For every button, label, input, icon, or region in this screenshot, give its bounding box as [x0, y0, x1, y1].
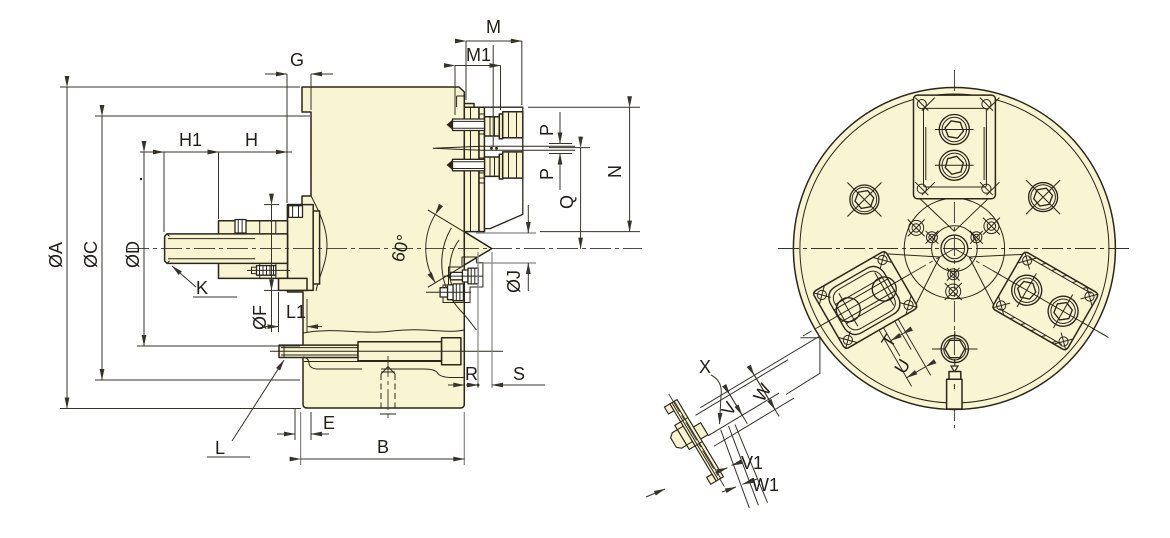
- svg-text:ØJ: ØJ: [504, 270, 524, 293]
- svg-text:R: R: [465, 364, 478, 384]
- svg-text:K: K: [196, 278, 208, 298]
- svg-text:E: E: [323, 413, 335, 433]
- svg-text:H: H: [245, 130, 258, 150]
- svg-text:P: P: [537, 168, 557, 180]
- svg-text:H1: H1: [179, 130, 202, 150]
- svg-text:M: M: [486, 17, 501, 37]
- svg-text:ØD: ØD: [123, 241, 143, 268]
- svg-text:X: X: [699, 357, 711, 377]
- svg-text:S: S: [513, 364, 525, 384]
- svg-text:M1: M1: [466, 45, 491, 65]
- svg-text:W1: W1: [752, 475, 779, 495]
- svg-text:P: P: [537, 124, 557, 136]
- svg-text:ØA: ØA: [46, 242, 66, 268]
- svg-text:V1: V1: [741, 453, 763, 473]
- svg-text:ØC: ØC: [81, 241, 101, 268]
- svg-text:N: N: [605, 165, 625, 178]
- svg-text:G: G: [290, 50, 304, 70]
- svg-text:Q: Q: [557, 195, 577, 209]
- svg-text:B: B: [377, 437, 389, 457]
- svg-text:L1: L1: [286, 302, 306, 322]
- svg-text:L: L: [215, 438, 225, 458]
